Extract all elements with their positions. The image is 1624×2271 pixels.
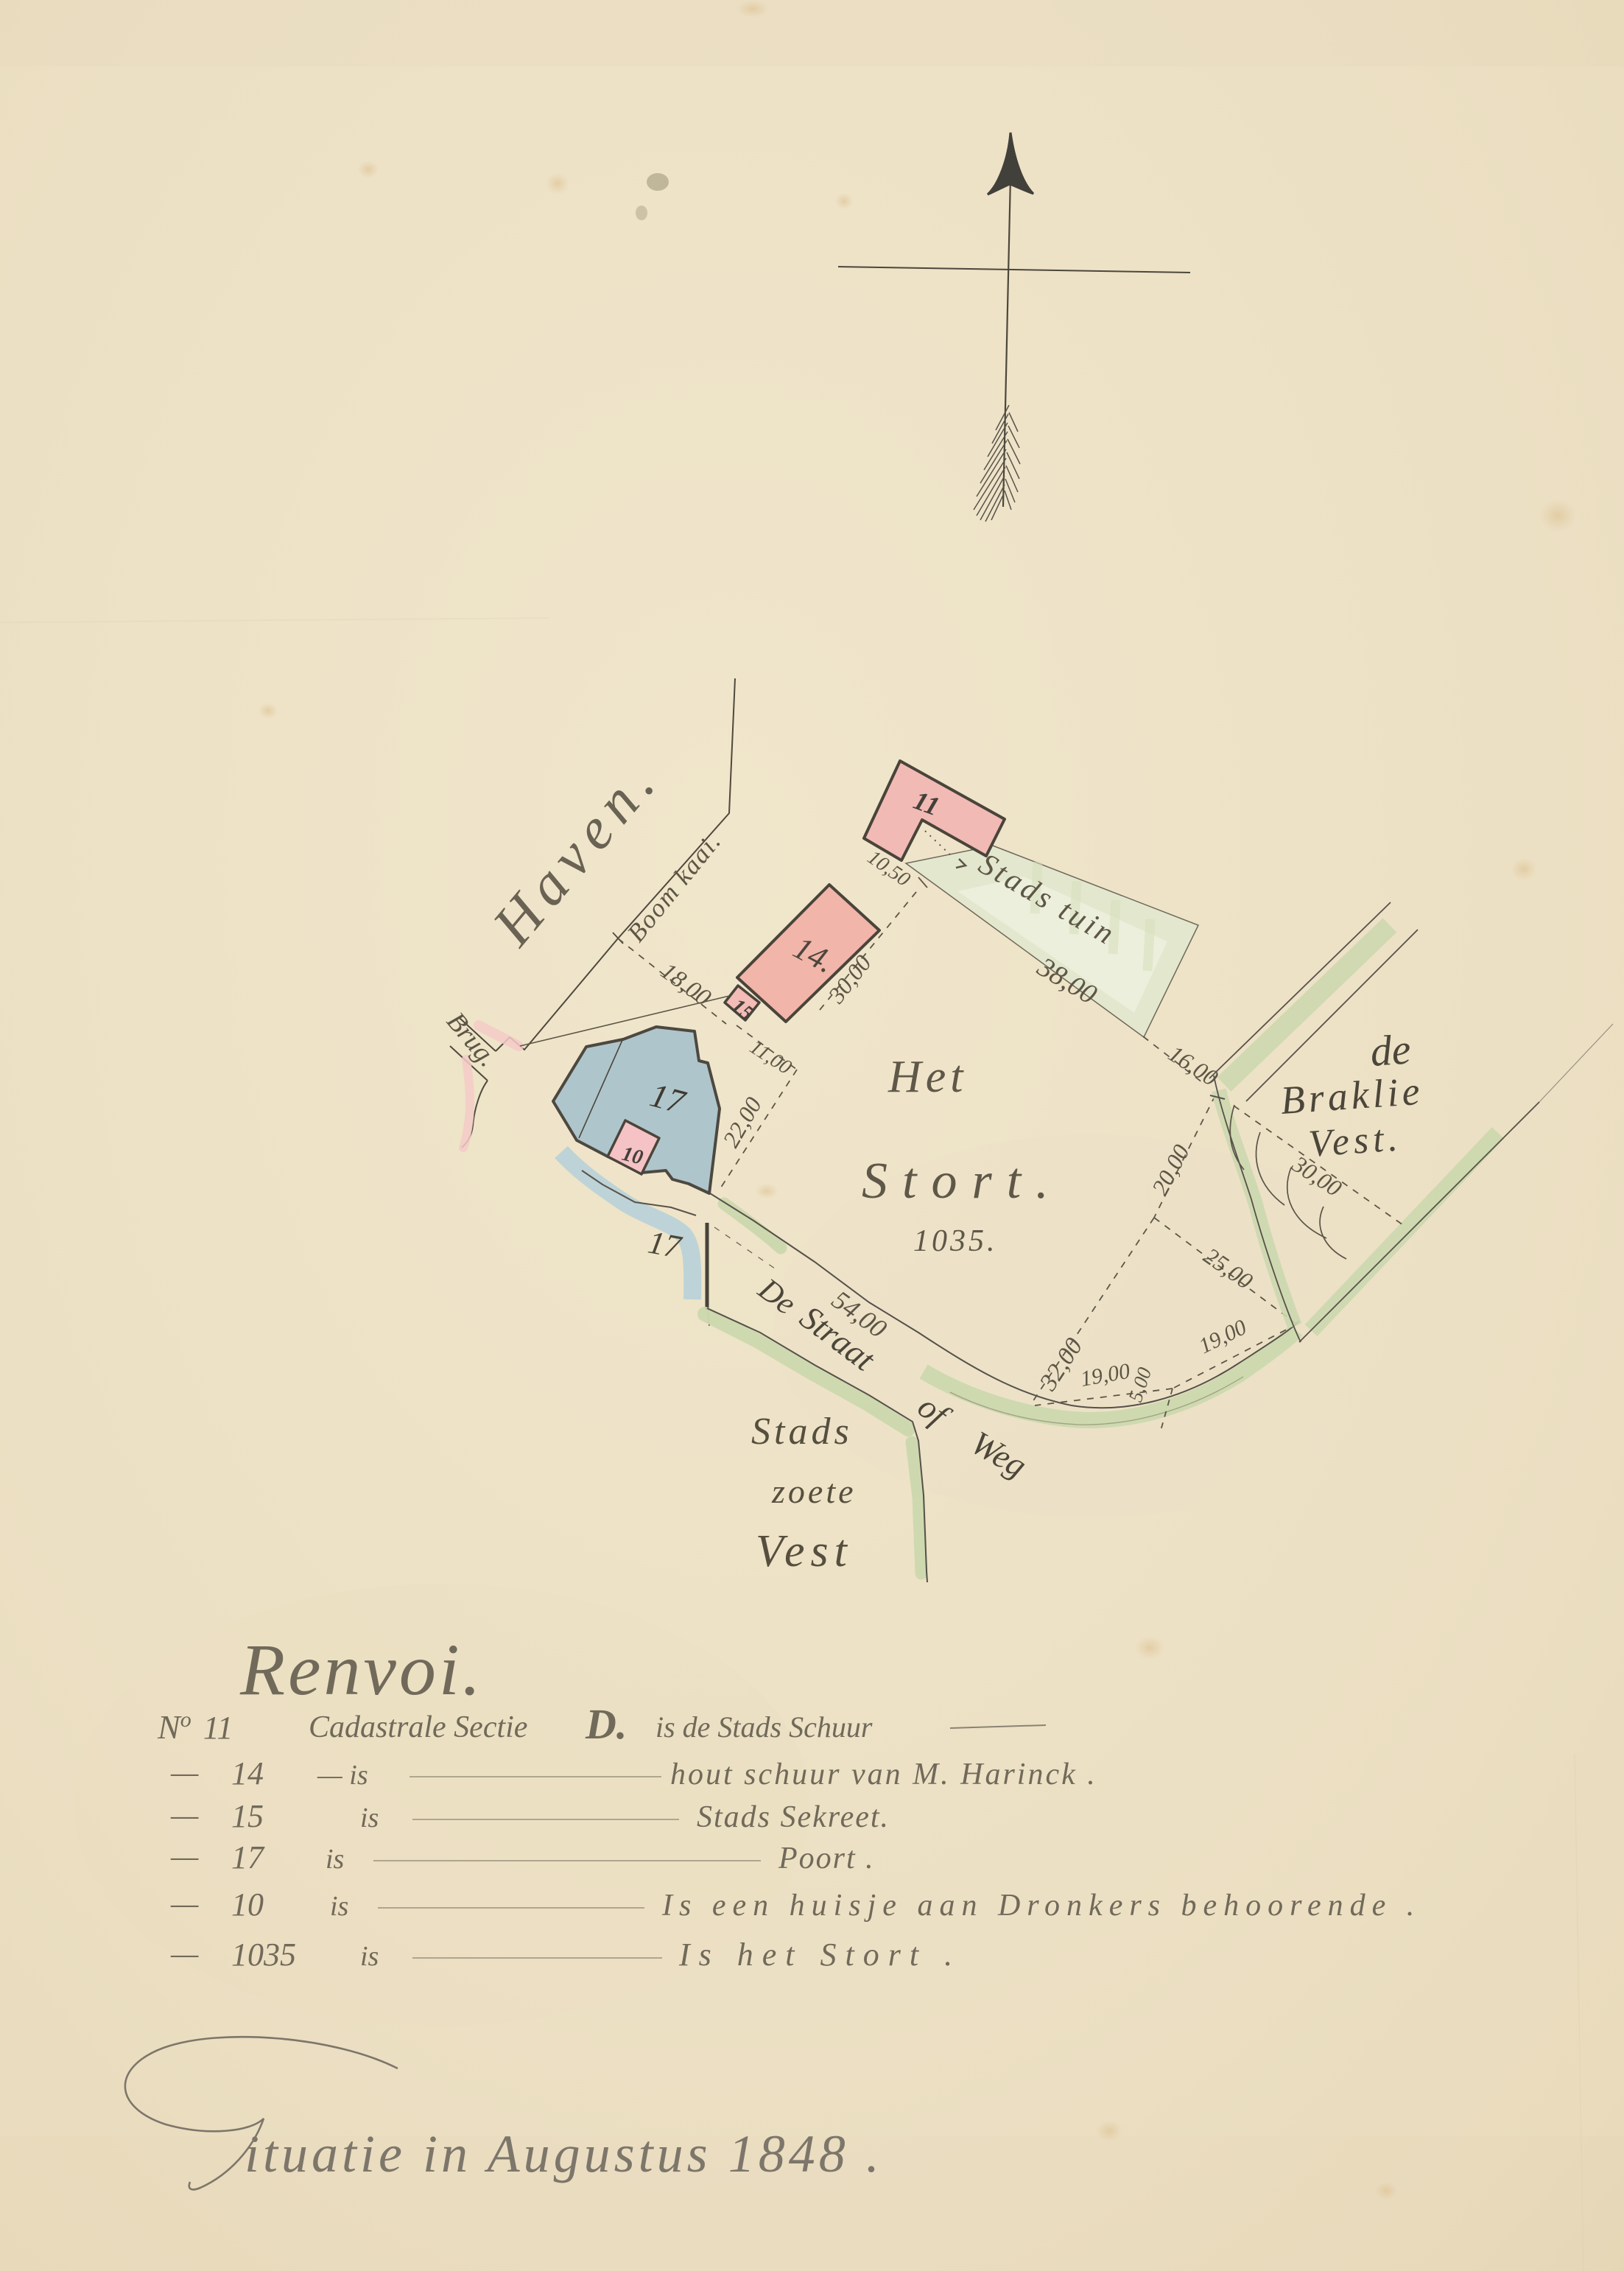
svg-text:Vest: Vest (756, 1526, 853, 1576)
svg-text:—: — (170, 1887, 199, 1921)
svg-text:de: de (1368, 1025, 1412, 1075)
svg-text:Het: Het (887, 1052, 968, 1102)
svg-text:ituatie in Augustus 1848 .: ituatie in Augustus 1848 . (245, 2124, 883, 2183)
svg-text:D.: D. (585, 1700, 627, 1748)
svg-text:Renvoi.: Renvoi. (239, 1629, 484, 1710)
svg-text:15: 15 (231, 1798, 264, 1834)
svg-text:14: 14 (231, 1755, 264, 1791)
svg-text:Cadastrale Sectie: Cadastrale Sectie (309, 1710, 527, 1744)
svg-text:is: is (360, 1941, 379, 1972)
svg-text:—: — (170, 1937, 199, 1971)
svg-text:— is: — is (317, 1760, 368, 1791)
svg-text:Stort.: Stort. (862, 1153, 1064, 1210)
svg-text:1035: 1035 (231, 1937, 296, 1973)
svg-text:17: 17 (231, 1839, 265, 1875)
svg-text:—: — (170, 1840, 199, 1874)
svg-text:zoete: zoete (771, 1473, 857, 1510)
svg-text:hout schuur van M. Harinck .: hout schuur van M. Harinck . (670, 1758, 1097, 1791)
svg-text:is: is (330, 1891, 348, 1922)
svg-text:Is een huisje aan Dronkers beh: Is een huisje aan Dronkers behoorende . (661, 1889, 1421, 1923)
svg-text:Stads Sekreet.: Stads Sekreet. (697, 1800, 890, 1834)
svg-text:is de Stads Schuur: is de Stads Schuur (655, 1710, 873, 1744)
svg-text:—: — (170, 1799, 199, 1833)
svg-text:—: — (170, 1756, 199, 1790)
svg-text:Is het Stort .: Is het Stort . (678, 1937, 961, 1973)
svg-text:is: is (326, 1844, 344, 1875)
svg-text:1035.: 1035. (913, 1224, 998, 1258)
svg-text:Stads: Stads (751, 1411, 853, 1453)
svg-text:10: 10 (231, 1886, 264, 1923)
svg-text:is: is (360, 1803, 379, 1833)
svg-text:Poort .: Poort . (778, 1842, 875, 1875)
svg-text:Vest.: Vest. (1307, 1117, 1403, 1165)
